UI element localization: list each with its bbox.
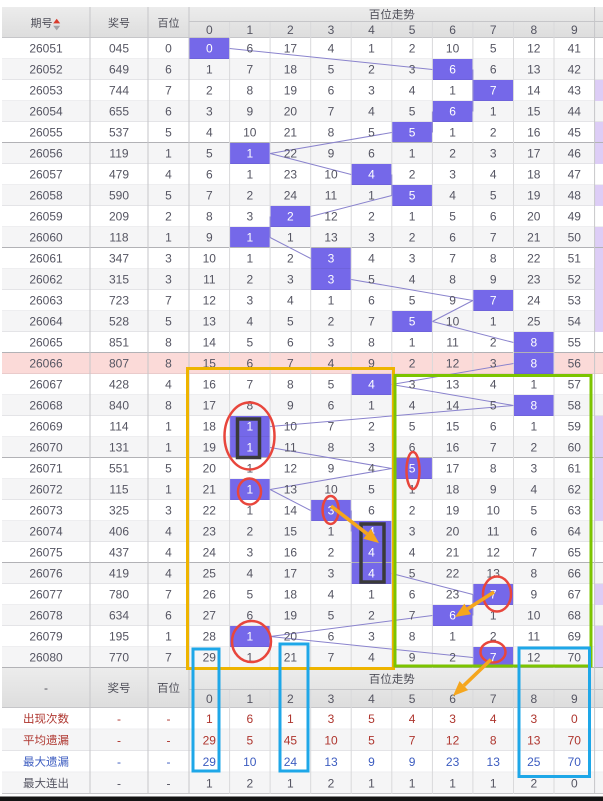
svg-text:5: 5 xyxy=(206,147,213,161)
svg-text:1: 1 xyxy=(409,210,416,224)
svg-text:26061: 26061 xyxy=(29,252,63,266)
svg-text:26073: 26073 xyxy=(29,504,63,518)
svg-text:5: 5 xyxy=(165,126,172,140)
svg-text:2: 2 xyxy=(409,357,416,371)
svg-text:5: 5 xyxy=(368,712,375,726)
svg-text:6: 6 xyxy=(246,712,253,726)
svg-text:3: 3 xyxy=(409,378,416,392)
svg-text:1: 1 xyxy=(287,776,294,790)
svg-text:3: 3 xyxy=(368,231,375,245)
svg-text:8: 8 xyxy=(287,378,294,392)
svg-text:4: 4 xyxy=(409,84,416,98)
svg-text:4: 4 xyxy=(530,483,537,497)
svg-text:551: 551 xyxy=(109,462,129,476)
svg-text:5: 5 xyxy=(368,733,375,747)
svg-text:1: 1 xyxy=(409,336,416,350)
svg-text:8: 8 xyxy=(246,84,253,98)
svg-text:6: 6 xyxy=(328,630,335,644)
svg-text:1: 1 xyxy=(246,252,253,266)
svg-text:21: 21 xyxy=(446,546,460,560)
svg-text:4: 4 xyxy=(449,189,456,203)
svg-text:20: 20 xyxy=(446,525,460,539)
svg-text:14: 14 xyxy=(203,336,217,350)
svg-text:1: 1 xyxy=(368,588,375,602)
svg-text:7: 7 xyxy=(328,105,335,119)
svg-text:19: 19 xyxy=(284,84,298,98)
svg-text:10: 10 xyxy=(284,420,298,434)
svg-text:26053: 26053 xyxy=(29,84,63,98)
svg-text:10: 10 xyxy=(324,733,338,747)
svg-text:4: 4 xyxy=(246,315,253,329)
svg-text:26054: 26054 xyxy=(29,105,63,119)
svg-text:26074: 26074 xyxy=(29,525,63,539)
svg-text:26070: 26070 xyxy=(29,441,63,455)
svg-text:12: 12 xyxy=(324,210,338,224)
svg-text:26079: 26079 xyxy=(29,630,63,644)
svg-text:5: 5 xyxy=(409,189,416,203)
svg-text:8: 8 xyxy=(530,567,537,581)
svg-text:0: 0 xyxy=(571,712,578,726)
svg-text:9: 9 xyxy=(287,399,294,413)
svg-text:1: 1 xyxy=(165,420,172,434)
svg-text:12: 12 xyxy=(527,651,541,665)
svg-text:8: 8 xyxy=(530,357,537,371)
svg-text:325: 325 xyxy=(109,504,129,518)
svg-text:26069: 26069 xyxy=(29,420,63,434)
svg-text:3: 3 xyxy=(287,273,294,287)
svg-text:6: 6 xyxy=(490,420,497,434)
svg-text:7: 7 xyxy=(368,315,375,329)
svg-text:3: 3 xyxy=(409,252,416,266)
svg-text:0: 0 xyxy=(206,23,213,37)
svg-text:6: 6 xyxy=(449,63,456,77)
svg-text:7: 7 xyxy=(246,378,253,392)
svg-text:23: 23 xyxy=(446,588,460,602)
svg-text:2: 2 xyxy=(409,504,416,518)
svg-text:13: 13 xyxy=(324,755,338,769)
svg-text:6: 6 xyxy=(287,336,294,350)
svg-text:590: 590 xyxy=(109,189,129,203)
svg-text:47: 47 xyxy=(568,168,582,182)
svg-text:15: 15 xyxy=(527,105,541,119)
svg-text:8: 8 xyxy=(530,399,537,413)
svg-text:11: 11 xyxy=(487,525,500,539)
svg-text:2: 2 xyxy=(368,609,375,623)
svg-text:-: - xyxy=(167,776,171,790)
svg-text:10: 10 xyxy=(527,609,541,623)
svg-text:13: 13 xyxy=(203,315,217,329)
svg-text:9: 9 xyxy=(409,755,416,769)
svg-text:21: 21 xyxy=(527,231,541,245)
svg-text:29: 29 xyxy=(203,733,217,747)
svg-text:3: 3 xyxy=(449,168,456,182)
svg-text:14: 14 xyxy=(446,399,460,413)
svg-text:26067: 26067 xyxy=(29,378,63,392)
svg-text:22: 22 xyxy=(284,147,298,161)
svg-text:2: 2 xyxy=(246,189,253,203)
svg-text:5: 5 xyxy=(368,126,375,140)
svg-text:0: 0 xyxy=(206,692,213,706)
svg-text:8: 8 xyxy=(449,273,456,287)
svg-text:6: 6 xyxy=(368,147,375,161)
svg-text:8: 8 xyxy=(328,441,335,455)
svg-text:6: 6 xyxy=(449,105,456,119)
svg-text:10: 10 xyxy=(243,755,257,769)
svg-text:8: 8 xyxy=(328,126,335,140)
svg-text:045: 045 xyxy=(109,42,129,56)
svg-text:5: 5 xyxy=(246,588,253,602)
svg-text:2: 2 xyxy=(287,692,294,706)
svg-text:13: 13 xyxy=(527,733,541,747)
svg-text:3: 3 xyxy=(368,441,375,455)
svg-text:119: 119 xyxy=(109,147,128,161)
svg-text:21: 21 xyxy=(284,651,298,665)
svg-text:25: 25 xyxy=(203,567,217,581)
svg-text:5: 5 xyxy=(409,692,416,706)
svg-text:4: 4 xyxy=(409,712,416,726)
svg-text:1: 1 xyxy=(246,630,253,644)
svg-text:4: 4 xyxy=(165,168,172,182)
svg-text:9: 9 xyxy=(206,231,213,245)
svg-text:4: 4 xyxy=(368,168,375,182)
svg-text:13: 13 xyxy=(446,378,460,392)
svg-text:1: 1 xyxy=(246,168,253,182)
svg-text:5: 5 xyxy=(328,378,335,392)
svg-text:1: 1 xyxy=(246,420,253,434)
svg-text:13: 13 xyxy=(527,63,541,77)
svg-text:406: 406 xyxy=(109,525,129,539)
svg-text:17: 17 xyxy=(203,399,217,413)
svg-text:13: 13 xyxy=(324,231,338,245)
svg-text:9: 9 xyxy=(449,294,456,308)
svg-text:17: 17 xyxy=(284,567,298,581)
svg-text:4: 4 xyxy=(368,23,375,37)
svg-text:5: 5 xyxy=(409,567,416,581)
svg-text:3: 3 xyxy=(246,294,253,308)
svg-text:5: 5 xyxy=(246,733,253,747)
svg-text:29: 29 xyxy=(203,755,217,769)
svg-text:18: 18 xyxy=(284,63,298,77)
svg-text:1: 1 xyxy=(368,42,375,56)
svg-text:1: 1 xyxy=(165,147,172,161)
svg-text:4: 4 xyxy=(490,378,497,392)
svg-text:28: 28 xyxy=(203,630,217,644)
svg-text:8: 8 xyxy=(165,357,172,371)
svg-text:2: 2 xyxy=(409,231,416,245)
svg-text:5: 5 xyxy=(246,336,253,350)
svg-text:3: 3 xyxy=(165,252,172,266)
svg-text:11: 11 xyxy=(284,441,297,455)
svg-text:-: - xyxy=(44,681,48,695)
svg-text:60: 60 xyxy=(568,441,582,455)
svg-text:3: 3 xyxy=(490,357,497,371)
svg-text:24: 24 xyxy=(284,755,298,769)
svg-text:22: 22 xyxy=(527,252,541,266)
svg-text:851: 851 xyxy=(109,336,129,350)
svg-text:5: 5 xyxy=(409,23,416,37)
svg-text:6: 6 xyxy=(368,504,375,518)
svg-text:195: 195 xyxy=(109,630,129,644)
svg-text:26072: 26072 xyxy=(29,483,63,497)
svg-text:3: 3 xyxy=(165,273,172,287)
svg-text:41: 41 xyxy=(568,42,582,56)
svg-text:8: 8 xyxy=(165,336,172,350)
svg-text:6: 6 xyxy=(165,105,172,119)
svg-text:12: 12 xyxy=(527,42,541,56)
svg-text:12: 12 xyxy=(487,546,501,560)
svg-text:9: 9 xyxy=(571,692,578,706)
svg-text:4: 4 xyxy=(409,546,416,560)
svg-text:840: 840 xyxy=(109,399,129,413)
svg-text:26060: 26060 xyxy=(29,231,63,245)
svg-text:1: 1 xyxy=(246,692,253,706)
svg-text:1: 1 xyxy=(246,23,253,37)
svg-text:48: 48 xyxy=(568,189,582,203)
svg-text:19: 19 xyxy=(446,504,460,518)
svg-text:3: 3 xyxy=(328,336,335,350)
svg-text:26066: 26066 xyxy=(29,357,63,371)
svg-text:44: 44 xyxy=(568,105,582,119)
svg-text:1: 1 xyxy=(409,147,416,161)
svg-text:4: 4 xyxy=(287,294,294,308)
svg-text:131: 131 xyxy=(109,441,129,455)
svg-text:10: 10 xyxy=(446,42,460,56)
svg-text:7: 7 xyxy=(328,420,335,434)
svg-text:7: 7 xyxy=(490,294,497,308)
svg-text:24: 24 xyxy=(203,546,217,560)
svg-text:114: 114 xyxy=(109,420,128,434)
svg-text:8: 8 xyxy=(165,399,172,413)
svg-text:5: 5 xyxy=(165,315,172,329)
svg-text:3: 3 xyxy=(449,712,456,726)
svg-text:1: 1 xyxy=(165,231,172,245)
svg-text:7: 7 xyxy=(246,63,253,77)
svg-text:22: 22 xyxy=(203,504,217,518)
svg-text:5: 5 xyxy=(287,315,294,329)
svg-text:59: 59 xyxy=(568,420,582,434)
svg-text:3: 3 xyxy=(530,462,537,476)
svg-text:43: 43 xyxy=(568,84,582,98)
svg-text:807: 807 xyxy=(109,357,129,371)
svg-text:26076: 26076 xyxy=(29,567,63,581)
svg-text:419: 419 xyxy=(109,567,129,581)
svg-text:29: 29 xyxy=(203,651,217,665)
svg-text:1: 1 xyxy=(246,147,253,161)
svg-text:26062: 26062 xyxy=(29,273,63,287)
svg-text:7: 7 xyxy=(206,189,213,203)
svg-text:528: 528 xyxy=(109,315,129,329)
svg-text:3: 3 xyxy=(328,712,335,726)
svg-text:14: 14 xyxy=(527,84,541,98)
svg-text:8: 8 xyxy=(530,336,537,350)
svg-text:4: 4 xyxy=(409,273,416,287)
svg-text:70: 70 xyxy=(568,755,582,769)
svg-text:4: 4 xyxy=(368,252,375,266)
svg-text:5: 5 xyxy=(490,42,497,56)
svg-text:10: 10 xyxy=(324,483,338,497)
svg-text:6: 6 xyxy=(409,588,416,602)
svg-text:4: 4 xyxy=(328,42,335,56)
svg-text:26065: 26065 xyxy=(29,336,63,350)
svg-text:19: 19 xyxy=(203,441,217,455)
svg-text:5: 5 xyxy=(368,483,375,497)
svg-text:2: 2 xyxy=(328,315,335,329)
svg-text:5: 5 xyxy=(328,63,335,77)
svg-text:23: 23 xyxy=(284,168,298,182)
svg-text:1: 1 xyxy=(449,630,456,644)
svg-text:25: 25 xyxy=(527,315,541,329)
svg-text:23: 23 xyxy=(446,755,460,769)
svg-text:25: 25 xyxy=(527,755,541,769)
svg-text:-: - xyxy=(167,733,171,747)
svg-text:118: 118 xyxy=(109,231,128,245)
svg-text:12: 12 xyxy=(446,357,460,371)
svg-text:3: 3 xyxy=(328,23,335,37)
svg-text:2: 2 xyxy=(287,23,294,37)
svg-text:1: 1 xyxy=(449,84,456,98)
svg-text:1: 1 xyxy=(530,378,537,392)
svg-text:8: 8 xyxy=(530,23,537,37)
svg-text:2: 2 xyxy=(368,63,375,77)
svg-text:14: 14 xyxy=(284,504,298,518)
svg-text:70: 70 xyxy=(568,733,582,747)
svg-text:27: 27 xyxy=(203,609,217,623)
svg-text:437: 437 xyxy=(109,546,129,560)
svg-text:26063: 26063 xyxy=(29,294,63,308)
svg-text:13: 13 xyxy=(487,755,501,769)
svg-text:8: 8 xyxy=(409,630,416,644)
svg-text:7: 7 xyxy=(490,23,497,37)
svg-text:2: 2 xyxy=(449,651,456,665)
svg-text:7: 7 xyxy=(165,84,172,98)
svg-text:634: 634 xyxy=(109,609,129,623)
svg-text:23: 23 xyxy=(527,273,541,287)
svg-text:0: 0 xyxy=(165,42,172,56)
svg-text:6: 6 xyxy=(368,294,375,308)
svg-text:58: 58 xyxy=(568,399,582,413)
svg-text:51: 51 xyxy=(568,252,582,266)
svg-text:4: 4 xyxy=(368,546,375,560)
svg-text:5: 5 xyxy=(530,504,537,518)
svg-text:7: 7 xyxy=(165,651,172,665)
svg-text:6: 6 xyxy=(328,84,335,98)
svg-text:7: 7 xyxy=(530,546,537,560)
svg-text:3: 3 xyxy=(530,712,537,726)
svg-text:57: 57 xyxy=(568,378,582,392)
svg-text:5: 5 xyxy=(409,462,416,476)
svg-text:26064: 26064 xyxy=(29,315,63,329)
svg-text:23: 23 xyxy=(203,525,217,539)
svg-text:1: 1 xyxy=(246,231,253,245)
svg-text:2: 2 xyxy=(328,546,335,560)
svg-text:7: 7 xyxy=(409,609,416,623)
svg-text:54: 54 xyxy=(568,315,582,329)
svg-text:744: 744 xyxy=(109,84,129,98)
svg-text:1: 1 xyxy=(287,712,294,726)
svg-text:45: 45 xyxy=(568,126,582,140)
svg-text:655: 655 xyxy=(109,105,129,119)
svg-text:1: 1 xyxy=(328,294,335,308)
svg-text:9: 9 xyxy=(328,462,335,476)
svg-text:9: 9 xyxy=(409,651,416,665)
svg-text:12: 12 xyxy=(284,462,298,476)
svg-text:7: 7 xyxy=(165,294,172,308)
svg-text:26057: 26057 xyxy=(29,168,63,182)
svg-text:20: 20 xyxy=(284,105,298,119)
svg-text:649: 649 xyxy=(109,63,129,77)
svg-text:26055: 26055 xyxy=(29,126,63,140)
svg-text:61: 61 xyxy=(568,462,582,476)
svg-text:45: 45 xyxy=(284,733,298,747)
svg-text:3: 3 xyxy=(490,147,497,161)
svg-text:4: 4 xyxy=(165,567,172,581)
svg-text:7: 7 xyxy=(165,588,172,602)
svg-text:15: 15 xyxy=(446,420,460,434)
svg-text:26056: 26056 xyxy=(29,147,63,161)
svg-text:3: 3 xyxy=(206,105,213,119)
svg-text:26058: 26058 xyxy=(29,189,63,203)
svg-text:2: 2 xyxy=(206,84,213,98)
svg-text:2: 2 xyxy=(287,210,294,224)
svg-text:3: 3 xyxy=(165,504,172,518)
svg-text:2: 2 xyxy=(409,42,416,56)
svg-text:1: 1 xyxy=(490,776,497,790)
svg-text:19: 19 xyxy=(527,189,541,203)
svg-text:1: 1 xyxy=(287,231,294,245)
svg-text:4: 4 xyxy=(368,651,375,665)
svg-text:6: 6 xyxy=(490,210,497,224)
svg-text:115: 115 xyxy=(109,483,128,497)
svg-text:1: 1 xyxy=(246,483,253,497)
svg-text:5: 5 xyxy=(490,189,497,203)
svg-text:3: 3 xyxy=(328,692,335,706)
svg-text:315: 315 xyxy=(109,273,129,287)
svg-text:3: 3 xyxy=(246,210,253,224)
svg-text:0: 0 xyxy=(571,776,578,790)
svg-text:7: 7 xyxy=(409,733,416,747)
svg-text:15: 15 xyxy=(284,525,298,539)
svg-text:11: 11 xyxy=(325,189,338,203)
svg-text:770: 770 xyxy=(109,651,129,665)
svg-text:11: 11 xyxy=(528,630,541,644)
svg-text:8: 8 xyxy=(490,252,497,266)
svg-text:4: 4 xyxy=(490,168,497,182)
svg-text:2: 2 xyxy=(490,126,497,140)
svg-text:7: 7 xyxy=(490,84,497,98)
svg-text:11: 11 xyxy=(203,273,216,287)
svg-text:24: 24 xyxy=(284,189,298,203)
svg-text:22: 22 xyxy=(446,567,460,581)
svg-text:780: 780 xyxy=(109,588,129,602)
svg-text:9: 9 xyxy=(571,23,578,37)
svg-text:26052: 26052 xyxy=(29,63,63,77)
svg-text:18: 18 xyxy=(446,483,460,497)
svg-text:8: 8 xyxy=(490,733,497,747)
svg-text:6: 6 xyxy=(328,399,335,413)
svg-text:7: 7 xyxy=(449,252,456,266)
svg-text:4: 4 xyxy=(368,692,375,706)
svg-text:4: 4 xyxy=(368,462,375,476)
svg-text:8: 8 xyxy=(246,399,253,413)
svg-text:7: 7 xyxy=(490,692,497,706)
svg-text:26051: 26051 xyxy=(29,42,63,56)
svg-text:479: 479 xyxy=(109,168,129,182)
svg-text:3: 3 xyxy=(246,546,253,560)
svg-text:8: 8 xyxy=(490,462,497,476)
svg-text:21: 21 xyxy=(284,126,298,140)
svg-text:12: 12 xyxy=(203,294,217,308)
svg-text:4: 4 xyxy=(490,712,497,726)
